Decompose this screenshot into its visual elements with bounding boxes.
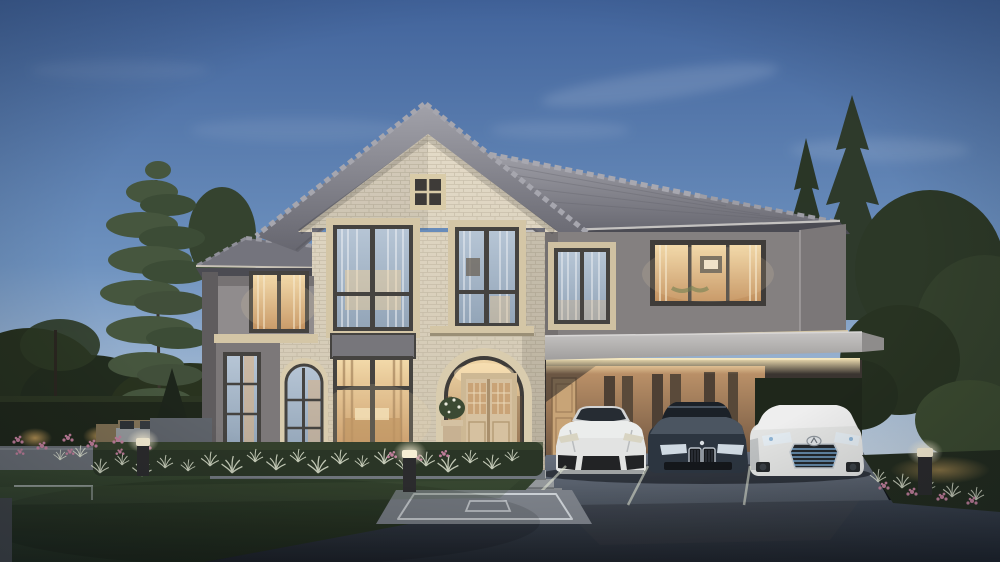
rendering-canvas	[0, 0, 1000, 562]
house-dusk-scene	[0, 0, 1000, 562]
vignette	[0, 0, 1000, 562]
